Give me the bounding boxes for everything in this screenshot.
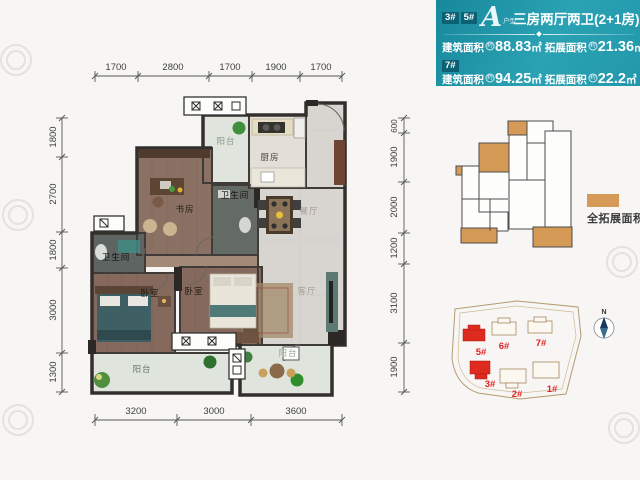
dim-left-2: 1800 [48, 239, 59, 260]
fridge [294, 118, 305, 138]
sink-counter [251, 168, 305, 187]
plant [204, 356, 217, 369]
legend-swatch [587, 194, 619, 207]
building-2 [506, 383, 518, 388]
plant [94, 372, 110, 388]
building-6 [498, 318, 510, 323]
dim-top-4: 1700 [310, 62, 331, 73]
expand-area-label: 拓展面积 [545, 42, 587, 54]
expansion-area [456, 166, 462, 175]
plan-type-logo-sub: 户型 [503, 18, 511, 25]
expansion-area [479, 143, 509, 172]
dim-top-3: 1900 [265, 62, 286, 73]
room-label-bedroom2: 卧室 [184, 286, 203, 296]
divider-diamond-icon [536, 31, 542, 37]
building-5-highlighted [463, 329, 485, 341]
room-label-dining: 餐厅 [299, 206, 318, 216]
room-label-bath2: 卫生间 [102, 252, 131, 262]
dim-left-1: 2700 [48, 183, 59, 204]
dim-right-5: 1900 [389, 356, 400, 377]
bookshelf [139, 149, 210, 158]
room-label-balcony-bc: 阳台 [278, 348, 297, 358]
study-floor [137, 148, 212, 255]
build-area-label: 建筑面积 [442, 42, 484, 54]
expand-area-unit: ㎡ [634, 42, 640, 54]
site-label-5: 5# [476, 347, 487, 358]
site-label-1: 1# [547, 384, 558, 395]
building-3-highlighted [470, 361, 490, 374]
approx-mark: 约 [486, 41, 495, 50]
expansion-area [508, 121, 527, 135]
room-label-study: 书房 [175, 204, 194, 214]
building-2 [500, 369, 526, 383]
header-divider [444, 31, 634, 37]
room-label-bath1: 卫生间 [221, 190, 250, 200]
dim-top-1: 2800 [162, 62, 183, 73]
building-5-highlighted [468, 325, 480, 330]
dim-right-0: 600 [390, 119, 399, 133]
build-area-value: 94.25 [495, 71, 531, 87]
room-label-bedroom1: 卧室 [140, 288, 159, 298]
balcony-chair [287, 369, 296, 378]
building-7 [534, 317, 546, 322]
build-area-value: 88.83 [495, 39, 531, 55]
sink [261, 172, 274, 182]
dim-top-0: 1700 [105, 62, 126, 73]
site-label-7: 7# [536, 338, 547, 349]
room-label-balcony-top: 阳台 [216, 136, 235, 146]
area-row-1: 建筑面积约88.83㎡ 拓展面积约21.36㎡ [442, 39, 636, 57]
unit-badge-5: 5# [461, 12, 478, 24]
build-area-unit: ㎡ [531, 42, 542, 54]
build-area-unit: ㎡ [531, 74, 542, 86]
dim-bottom-2: 3600 [285, 406, 306, 417]
dim-bottom-1: 3000 [203, 406, 224, 417]
legend-label: 全拓展面积 [586, 211, 640, 225]
header-title-row: 3# 5# A 户型 三房两厅两卫(2+1房) [442, 6, 636, 30]
dim-left-4: 1300 [48, 361, 59, 382]
site-label-6: 6# [499, 341, 510, 352]
building-6 [492, 322, 516, 335]
expansion-area [533, 227, 572, 247]
building-7 [528, 321, 552, 333]
expand-area-value: 21.36 [598, 39, 634, 55]
entry-cabinet [334, 140, 345, 185]
dim-bottom-0: 3200 [125, 406, 146, 417]
dim-right-3: 1200 [389, 237, 400, 258]
tv [329, 281, 333, 323]
cooktop [258, 122, 285, 133]
plan-type-logo: A [481, 6, 502, 30]
compass-icon: N [594, 309, 614, 339]
plan-title: 三房两厅两卫(2+1房) [513, 8, 639, 28]
expand-area-value: 22.2 [598, 71, 626, 87]
dim-left-3: 3000 [48, 299, 59, 320]
site-label-2: 2# [512, 389, 523, 400]
rattan-chair [163, 222, 177, 236]
floorplan-page: 阳台 厨房 卫生间 书房 餐厅 客厅 卫生间 卧室 卧室 阳台 阳台 [0, 0, 640, 480]
dim-right-1: 1900 [389, 146, 400, 167]
dim-right-4: 3100 [389, 292, 400, 313]
header-band: 3# 5# A 户型 三房两厅两卫(2+1房) 建筑面积约88.83㎡ 拓展面积… [436, 0, 640, 86]
dim-right-2: 2000 [389, 196, 400, 217]
area-row-2: 建筑面积约94.25㎡ 拓展面积约22.2㎡ [442, 71, 636, 89]
desk-chair [153, 197, 164, 208]
hall-floor [137, 255, 258, 267]
compass-n-label: N [601, 309, 606, 316]
building-1 [533, 362, 559, 378]
expansion-area [461, 228, 497, 243]
balcony-chair [259, 369, 268, 378]
site-plan: 5# 6# 7# 3# 2# 1# N [452, 301, 614, 400]
room-label-kitchen: 厨房 [260, 152, 279, 162]
dim-left-0: 1800 [48, 126, 59, 147]
unit-badge-3: 3# [442, 12, 459, 24]
header-badge-row: 7# [442, 58, 636, 71]
approx-mark: 约 [588, 73, 597, 82]
expansion-thumbnail [456, 121, 572, 247]
room-label-living: 客厅 [297, 286, 316, 296]
build-area-label: 建筑面积 [442, 74, 484, 86]
plant [233, 122, 246, 135]
expand-area-unit: ㎡ [626, 74, 637, 86]
rattan-chair [143, 219, 157, 233]
balcony-table [270, 364, 285, 379]
room-label-balcony-bl: 阳台 [132, 364, 151, 374]
approx-mark: 约 [588, 41, 597, 50]
approx-mark: 约 [486, 73, 495, 82]
site-label-3: 3# [485, 379, 496, 390]
dim-top-2: 1700 [219, 62, 240, 73]
expand-area-label: 拓展面积 [545, 74, 587, 86]
